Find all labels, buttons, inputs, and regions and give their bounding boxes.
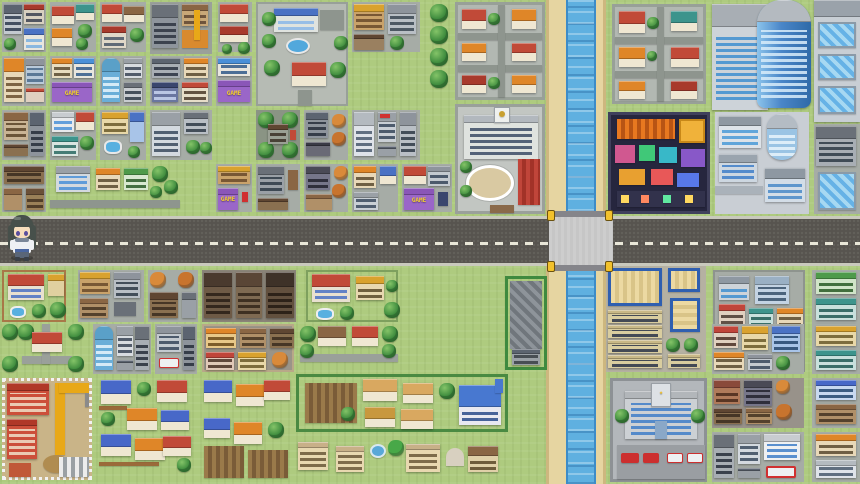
block-w-8 xyxy=(352,110,420,160)
tree xyxy=(382,344,396,358)
block-shops-w: GAME xyxy=(50,56,96,106)
stripes xyxy=(818,172,856,210)
tree xyxy=(776,356,790,370)
roof xyxy=(404,166,426,176)
house xyxy=(32,332,62,352)
farm-plot xyxy=(204,446,244,478)
adobe-village xyxy=(296,438,510,482)
bldg xyxy=(816,460,856,478)
block-sw-brown xyxy=(202,324,294,372)
bldg xyxy=(74,58,94,78)
windows xyxy=(379,124,394,139)
roof xyxy=(218,80,250,87)
house xyxy=(462,9,486,29)
block-e-3 xyxy=(812,432,860,482)
roof xyxy=(354,166,376,173)
roof xyxy=(220,4,248,14)
windows xyxy=(118,338,131,353)
game-shop-sign: GAME xyxy=(407,197,431,205)
roof xyxy=(354,192,378,198)
construction-site xyxy=(2,378,92,480)
block-market xyxy=(606,266,706,372)
tree xyxy=(258,142,274,158)
bldg xyxy=(184,112,208,134)
bldg xyxy=(306,166,330,190)
fire-truck xyxy=(766,466,796,478)
windows xyxy=(104,35,124,46)
pool xyxy=(316,308,334,320)
bldg xyxy=(608,355,662,368)
roof xyxy=(124,6,144,15)
car-red xyxy=(621,453,639,463)
bldg xyxy=(274,8,318,32)
bldg xyxy=(238,352,266,370)
roof xyxy=(468,446,498,456)
tree xyxy=(647,17,659,29)
block-downtown-sw xyxy=(93,324,151,374)
bldg xyxy=(258,166,284,194)
windows xyxy=(769,132,794,155)
bldg xyxy=(816,126,856,166)
bldg xyxy=(102,26,126,48)
bldg xyxy=(714,326,738,348)
game-shop-sign: GAME xyxy=(60,90,84,98)
house xyxy=(619,47,645,67)
tree xyxy=(332,114,346,128)
rect xyxy=(659,147,677,163)
bldg xyxy=(4,166,44,184)
windows xyxy=(96,344,111,366)
bldg xyxy=(608,310,662,323)
block-w-11 xyxy=(304,164,348,212)
roof xyxy=(274,8,318,16)
windows xyxy=(208,359,232,368)
tree xyxy=(80,136,94,150)
roof xyxy=(719,154,757,163)
roof xyxy=(814,0,860,17)
roof xyxy=(388,4,416,14)
roof xyxy=(719,276,749,284)
roof xyxy=(204,272,232,287)
roof xyxy=(52,58,72,64)
block-w-12 xyxy=(352,164,398,212)
bldg xyxy=(183,326,195,370)
player-eye-left xyxy=(16,231,20,236)
bldg xyxy=(668,354,700,368)
house xyxy=(220,26,248,42)
roof xyxy=(32,332,62,344)
roof xyxy=(124,58,142,64)
roof xyxy=(234,422,262,435)
house xyxy=(102,4,122,22)
roof xyxy=(135,438,165,451)
fountain xyxy=(286,38,310,54)
block-campus-s xyxy=(300,324,398,372)
windows xyxy=(26,12,43,22)
roof xyxy=(719,304,745,311)
windows xyxy=(26,37,43,48)
rect xyxy=(290,130,296,140)
tree xyxy=(32,304,46,318)
bldg xyxy=(24,28,44,50)
roof xyxy=(746,408,772,413)
windows xyxy=(154,130,178,152)
roof xyxy=(401,409,433,421)
bldg xyxy=(757,0,811,108)
windows xyxy=(470,126,532,155)
bldg xyxy=(742,326,768,350)
tree xyxy=(272,352,288,368)
roof xyxy=(218,166,250,172)
bldg xyxy=(4,144,28,156)
tower-glass xyxy=(814,0,860,122)
windows xyxy=(767,444,797,457)
crane-mast xyxy=(55,383,65,455)
bridge xyxy=(549,211,613,271)
roof xyxy=(204,380,232,393)
block-nw-2 xyxy=(50,2,96,52)
house xyxy=(101,434,131,456)
house xyxy=(462,75,486,93)
roof xyxy=(816,326,856,332)
bldg xyxy=(765,168,805,202)
roof xyxy=(816,272,856,279)
windows xyxy=(152,302,176,315)
house xyxy=(76,4,94,20)
roof xyxy=(152,4,178,18)
bldg xyxy=(468,446,498,472)
block-night-district xyxy=(608,112,710,214)
bldg xyxy=(816,350,856,370)
windows xyxy=(238,290,260,313)
player-eye-right xyxy=(24,231,28,236)
game-shop-sign: GAME xyxy=(222,90,246,98)
bldg xyxy=(714,408,742,424)
bldg xyxy=(26,58,44,84)
roof xyxy=(619,47,645,59)
roof xyxy=(236,384,264,397)
police-station: ★ xyxy=(610,378,707,482)
house xyxy=(671,11,697,31)
bldg xyxy=(96,168,120,190)
house xyxy=(512,75,536,93)
roof xyxy=(101,434,131,447)
roof xyxy=(184,58,208,64)
roof xyxy=(163,436,191,448)
block-w-10 xyxy=(256,164,300,212)
windows xyxy=(154,66,178,76)
bldg xyxy=(406,444,440,472)
house xyxy=(671,47,699,67)
bldg xyxy=(124,58,142,78)
main-road xyxy=(0,216,860,266)
lantern xyxy=(621,195,629,203)
windows xyxy=(612,330,657,337)
house xyxy=(352,326,378,346)
roof xyxy=(306,112,328,120)
windows xyxy=(104,121,126,132)
rect xyxy=(50,200,180,208)
tree xyxy=(68,324,84,340)
house xyxy=(619,11,645,33)
roof xyxy=(124,168,148,175)
tree xyxy=(177,458,191,472)
block-e-1 xyxy=(812,324,860,374)
bldg xyxy=(8,274,44,300)
house xyxy=(462,43,486,61)
roof xyxy=(306,166,330,174)
roof xyxy=(757,0,811,22)
bldg xyxy=(755,276,789,304)
school-gate xyxy=(490,205,514,213)
bldg xyxy=(738,434,760,464)
bldg xyxy=(354,192,378,210)
house xyxy=(220,4,248,22)
bldg xyxy=(270,328,294,348)
block-residential-nw xyxy=(455,2,545,100)
rect xyxy=(320,10,344,30)
block-station-sw xyxy=(155,324,197,374)
windows xyxy=(59,176,88,189)
windows xyxy=(356,199,376,208)
roof xyxy=(767,114,797,129)
lantern xyxy=(663,195,671,203)
windows xyxy=(462,410,497,421)
rect xyxy=(114,302,136,316)
windows xyxy=(671,359,698,367)
tree xyxy=(460,161,472,173)
windows xyxy=(5,16,20,31)
lantern xyxy=(641,195,649,203)
roof xyxy=(4,166,44,172)
rect xyxy=(194,10,200,40)
roof xyxy=(404,188,434,195)
tower-cylinder xyxy=(757,0,811,108)
roof xyxy=(608,340,662,344)
block-north-gate xyxy=(352,2,420,52)
tree xyxy=(200,142,212,154)
tree xyxy=(4,38,16,50)
player-collar xyxy=(15,238,29,242)
roof xyxy=(102,58,120,72)
bldg xyxy=(4,4,22,34)
tree xyxy=(341,407,355,421)
tree xyxy=(130,28,144,42)
windows xyxy=(819,142,853,162)
roof xyxy=(157,380,187,393)
ambulance xyxy=(159,358,179,368)
roof xyxy=(236,272,262,287)
bldg xyxy=(152,112,180,156)
block-game-shop-3: GAME xyxy=(402,164,452,212)
bridge-post xyxy=(605,210,613,221)
tree xyxy=(430,48,448,66)
roof xyxy=(816,350,856,356)
roof xyxy=(619,11,645,24)
roof xyxy=(380,166,396,176)
roof xyxy=(206,328,236,334)
block-residential-ne xyxy=(612,4,706,104)
tree xyxy=(430,4,448,22)
roof xyxy=(114,272,140,280)
block-modern-complex xyxy=(715,112,809,214)
bldg xyxy=(114,272,140,298)
roof xyxy=(777,308,803,314)
block-w-3 xyxy=(2,110,46,160)
tree xyxy=(384,302,400,318)
bldg xyxy=(354,166,376,188)
roof xyxy=(772,326,800,334)
roof xyxy=(312,274,350,287)
bldg xyxy=(266,272,294,318)
crane-arm xyxy=(59,383,89,393)
house xyxy=(619,81,645,99)
windows xyxy=(721,286,746,298)
windows xyxy=(242,336,264,346)
bldg xyxy=(52,112,74,132)
fire-station xyxy=(764,434,800,460)
fence xyxy=(99,462,159,466)
tree xyxy=(776,380,790,394)
bldg xyxy=(24,4,44,24)
tree xyxy=(684,338,698,352)
house xyxy=(292,62,326,86)
bldg xyxy=(56,166,90,192)
windows xyxy=(11,288,41,298)
tree xyxy=(150,186,162,198)
tree xyxy=(340,306,354,320)
house xyxy=(512,43,536,61)
windows xyxy=(716,359,741,368)
bldg xyxy=(218,58,250,76)
block-construction-north xyxy=(150,2,212,54)
windows xyxy=(358,286,382,298)
windows xyxy=(768,182,802,199)
roof xyxy=(306,142,330,146)
bldg xyxy=(388,4,416,34)
roof xyxy=(218,188,238,195)
bldg xyxy=(52,58,72,78)
windows xyxy=(744,336,766,348)
bridge-post xyxy=(547,261,555,272)
bldg xyxy=(714,434,734,478)
windows xyxy=(27,68,42,81)
rect xyxy=(298,90,312,106)
bldg xyxy=(102,112,128,134)
stripes xyxy=(818,54,856,80)
roof xyxy=(182,82,208,88)
tree xyxy=(186,140,200,154)
windows xyxy=(716,452,733,474)
bldg xyxy=(26,88,44,102)
tree xyxy=(382,326,398,342)
bldg xyxy=(816,380,856,400)
block-nw-1 xyxy=(2,2,46,52)
clock xyxy=(499,111,505,117)
roof xyxy=(318,326,346,338)
roof xyxy=(816,380,856,386)
bldg xyxy=(258,198,288,210)
game-viewport[interactable]: GAMEGAMEGAMEGAME★ xyxy=(0,0,860,484)
tree xyxy=(332,132,346,146)
windows xyxy=(54,144,76,154)
bldg xyxy=(4,112,28,140)
house xyxy=(236,384,264,406)
windows xyxy=(125,66,140,76)
roof xyxy=(95,326,113,340)
windows xyxy=(721,313,743,324)
roof xyxy=(102,4,122,14)
house xyxy=(157,380,187,402)
bldg xyxy=(130,112,144,142)
block-plaza-fountain xyxy=(256,2,348,106)
rect xyxy=(677,173,699,187)
windows xyxy=(76,66,93,76)
roof xyxy=(671,81,697,91)
windows xyxy=(136,344,148,366)
windows xyxy=(819,412,853,422)
bldg xyxy=(816,272,856,294)
roof xyxy=(7,383,49,391)
tree xyxy=(268,422,284,438)
bldg xyxy=(306,194,332,210)
roof xyxy=(102,26,126,33)
house xyxy=(401,409,433,429)
village-b xyxy=(200,378,292,482)
block-se-1 xyxy=(712,324,804,374)
roof xyxy=(354,34,384,39)
rect xyxy=(651,169,673,185)
windows xyxy=(750,360,770,368)
pool xyxy=(10,306,26,318)
tree xyxy=(2,324,18,340)
bldg xyxy=(298,442,328,470)
roof xyxy=(218,58,250,64)
roof xyxy=(749,308,773,314)
bldg xyxy=(240,328,266,348)
tree xyxy=(691,409,705,423)
roof xyxy=(363,379,397,392)
windows xyxy=(270,132,287,142)
tree xyxy=(164,180,178,194)
roof xyxy=(755,276,789,285)
bldg xyxy=(182,82,208,102)
bridge-post xyxy=(547,210,555,221)
roof xyxy=(512,75,536,85)
pool xyxy=(104,140,122,154)
windows xyxy=(315,289,347,300)
block-a-2 xyxy=(78,270,144,322)
steeple xyxy=(495,379,503,393)
house xyxy=(363,379,397,401)
house xyxy=(101,380,131,404)
bldg xyxy=(816,404,856,424)
roof xyxy=(48,274,64,281)
farm-hamlet xyxy=(296,374,508,432)
windows xyxy=(819,443,853,454)
windows xyxy=(9,429,34,455)
fence xyxy=(99,406,127,410)
roof xyxy=(512,43,536,53)
windows xyxy=(186,121,206,132)
roof xyxy=(56,166,90,174)
tree xyxy=(390,36,404,50)
roof xyxy=(117,360,133,363)
tree xyxy=(430,70,448,88)
roof xyxy=(52,6,74,16)
player-boot-left xyxy=(15,257,20,261)
bldg xyxy=(312,274,350,302)
